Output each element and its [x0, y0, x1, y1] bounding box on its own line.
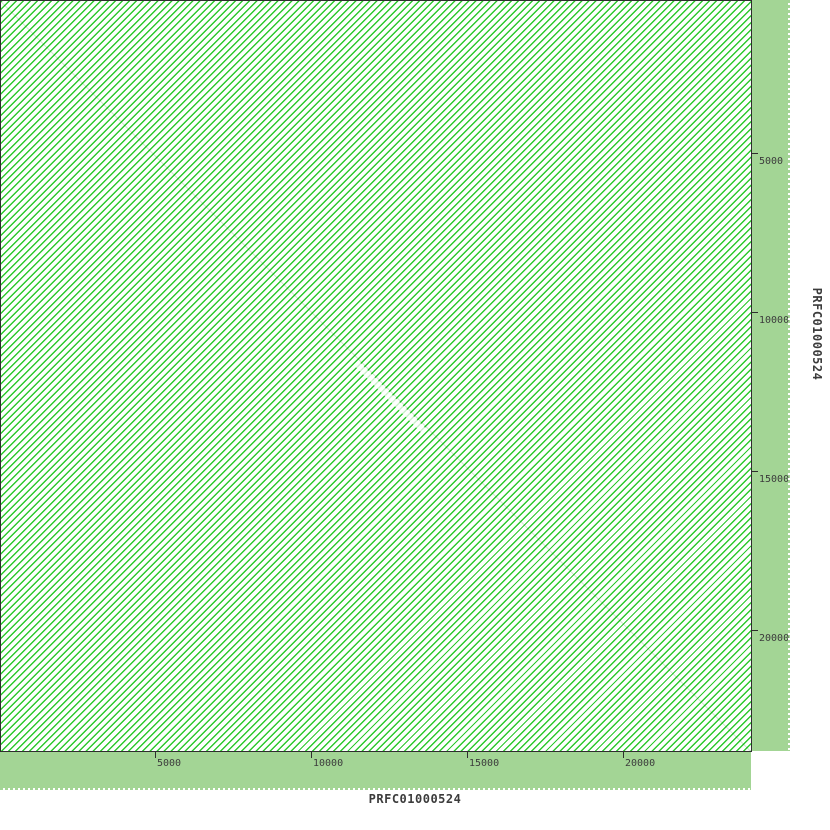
x-axis-tick: [623, 752, 624, 758]
main-identity-diagonal: [0, 1, 752, 752]
x-axis-sequence-title: PRFC01000524: [0, 792, 830, 806]
y-axis-sequence-title: PRFC01000524: [810, 288, 824, 381]
x-tick-label: 10000: [313, 758, 343, 769]
y-axis-tick: [752, 630, 758, 631]
y-axis-tick: [752, 471, 758, 472]
x-tick-label: 20000: [625, 758, 655, 769]
dotplot-window: 5000 10000 15000 20000 5000 10000 15000 …: [0, 0, 830, 830]
x-axis-strip: 5000 10000 15000 20000: [0, 752, 751, 790]
y-axis-tick: [752, 153, 758, 154]
y-tick-label: 20000: [759, 633, 789, 644]
y-axis-strip: 5000 10000 15000 20000: [752, 0, 790, 751]
y-tick-label: 10000: [759, 315, 789, 326]
dotplot-plot-area: [0, 0, 752, 752]
y-tick-label: 15000: [759, 474, 789, 485]
y-tick-label: 5000: [759, 156, 783, 167]
x-tick-label: 5000: [157, 758, 181, 769]
y-axis-tick: [752, 312, 758, 313]
diagonal-gap-band: [355, 362, 427, 434]
x-axis-tick: [155, 752, 156, 758]
x-axis-tick: [467, 752, 468, 758]
x-axis-tick: [311, 752, 312, 758]
x-tick-label: 15000: [469, 758, 499, 769]
